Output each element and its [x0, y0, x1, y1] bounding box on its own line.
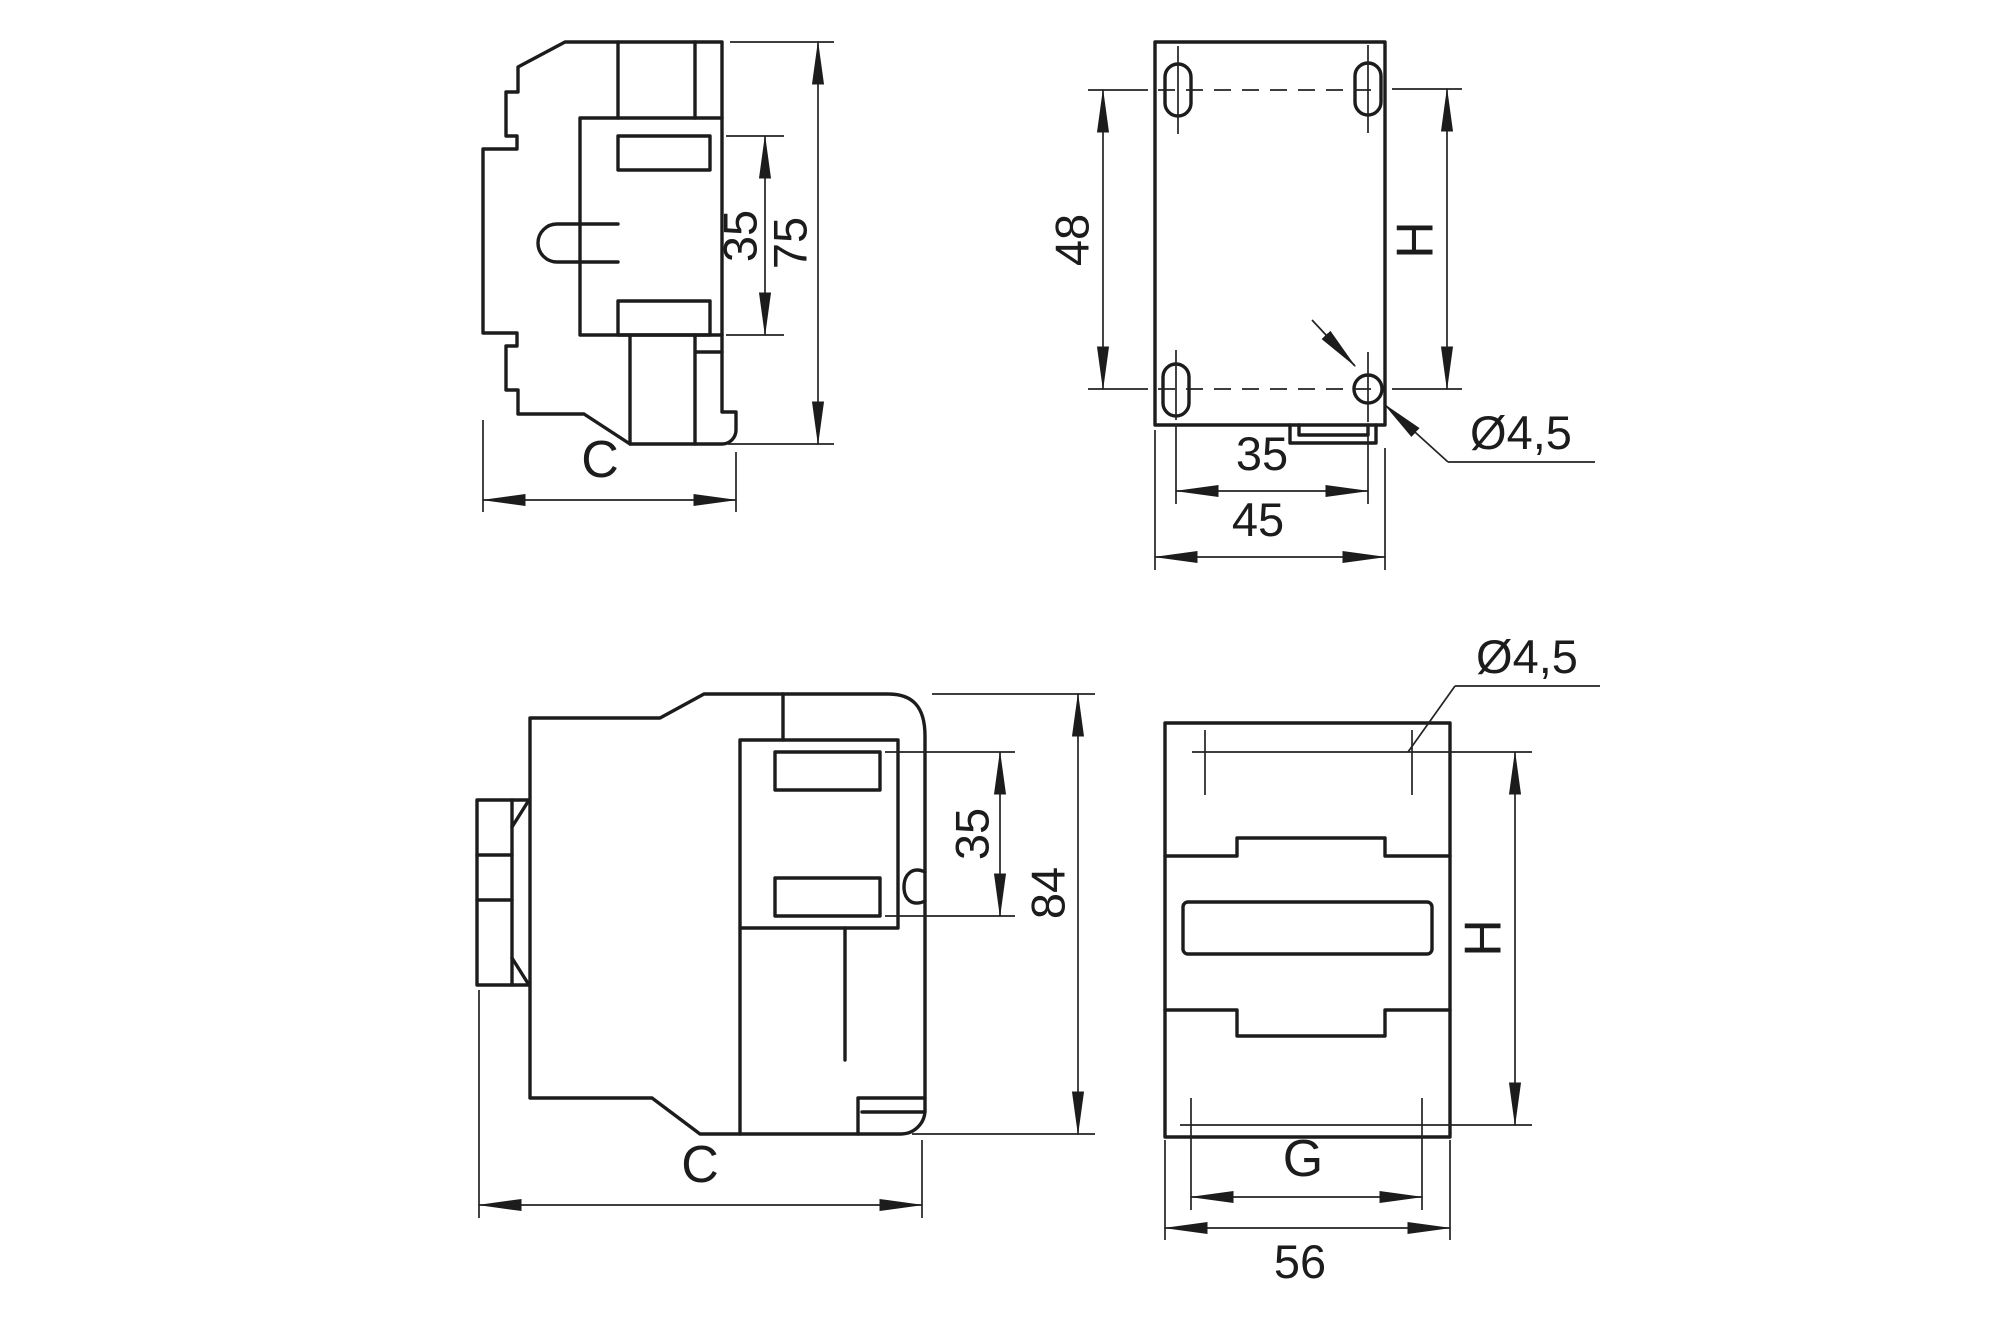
- terminal-slot-lower: [618, 301, 710, 335]
- hole-diameter-callout-front-view: Ø4,5: [1408, 630, 1600, 752]
- dim-label-hole-diameter: Ø4,5: [1476, 630, 1578, 683]
- dimension-overall-height-bottom-view: 84: [912, 694, 1095, 1134]
- dimension-vertical-hole-spacing: 48: [1045, 90, 1148, 389]
- leader-line-lower: [1384, 404, 1448, 462]
- view-side-top: 35 75 C: [483, 42, 834, 512]
- leader-line-upper: [1312, 320, 1355, 366]
- view-side-bottom: 35 84 C: [477, 694, 1095, 1218]
- terminal-slot-lower: [775, 878, 880, 916]
- din-rail-block: [477, 800, 512, 985]
- body-outline: [483, 42, 736, 444]
- dim-label-mounting-height: H: [1455, 919, 1513, 957]
- dim-label-overall-height: 84: [1021, 867, 1074, 919]
- view-front: Ø4,5 H G 56: [1165, 630, 1600, 1288]
- din-rail-block-dividers: [477, 855, 512, 900]
- dim-label-depth: C: [681, 1136, 719, 1194]
- technical-drawing-page: 35 75 C 48: [0, 0, 2000, 1333]
- dim-label-overall-height: 75: [763, 217, 816, 269]
- terminal-slot-upper: [775, 752, 880, 790]
- lower-step-profile: [1165, 1010, 1450, 1036]
- dimension-inner-width-front-view: G: [1191, 1130, 1422, 1197]
- dim-label-horizontal-hole-spacing: 35: [1236, 427, 1288, 480]
- dimension-depth-top-view: C: [483, 420, 736, 512]
- body-outline: [530, 694, 925, 1134]
- contactor-dimension-drawing: 35 75 C 48: [0, 0, 2000, 1333]
- dim-label-hole-diameter: Ø4,5: [1470, 406, 1572, 459]
- dim-label-depth: C: [581, 431, 619, 489]
- lower-body-details: [630, 335, 722, 444]
- terminal-slot-upper: [618, 136, 710, 170]
- dim-label-overall-width: 56: [1274, 1235, 1326, 1288]
- terminal-box: [740, 740, 898, 928]
- dim-label-rail-height: 35: [945, 808, 998, 860]
- dimension-mounting-height-front-view: H: [1180, 752, 1532, 1125]
- dim-label-mounting-height: H: [1387, 221, 1445, 259]
- actuator-finger: [538, 224, 618, 262]
- front-outline: [1165, 723, 1450, 1137]
- inner-details: [740, 928, 845, 1134]
- rail-latch-hook: [904, 870, 925, 903]
- dim-label-overall-width: 45: [1232, 493, 1284, 546]
- nameplate-window: [1183, 902, 1432, 954]
- dim-label-rail-height: 35: [713, 210, 766, 262]
- view-mounting-back: 48 H 35 45 Ø4,5: [1045, 42, 1595, 570]
- dimension-mounting-height-back-view: H: [1387, 89, 1462, 389]
- dimension-depth-bottom-view: C: [479, 990, 922, 1218]
- dim-label-vertical-hole-spacing: 48: [1045, 214, 1098, 266]
- dim-label-inner-width: G: [1283, 1130, 1323, 1188]
- bottom-tab: [1290, 425, 1376, 443]
- leader-line: [1408, 686, 1455, 752]
- hole-center-marks-top: [1205, 730, 1412, 795]
- din-clip-hooks: [512, 800, 529, 985]
- top-terminal-divider: [618, 42, 695, 118]
- upper-step-profile: [1165, 838, 1450, 856]
- hole-center-marks: [1176, 45, 1368, 422]
